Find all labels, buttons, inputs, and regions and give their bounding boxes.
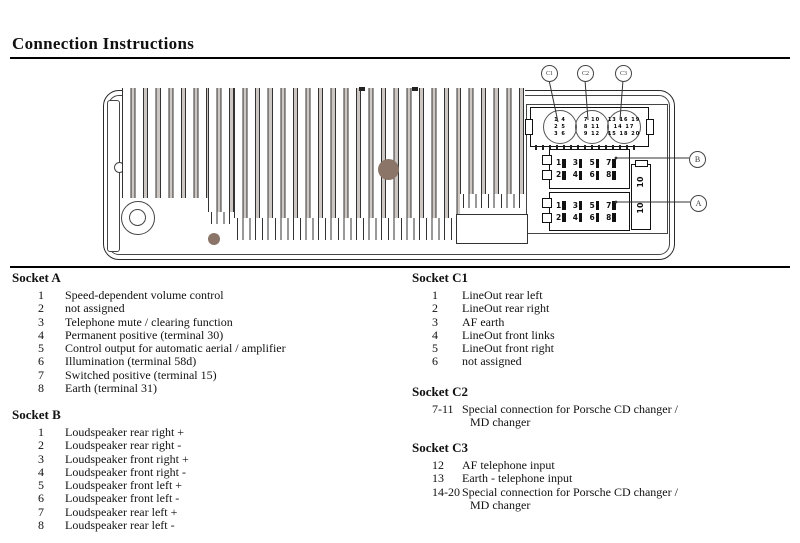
- pin-list: 1Speed-dependent volume control 2not ass…: [12, 289, 407, 395]
- socket-c2-connector: 7 10 8 11 9 12: [575, 110, 609, 144]
- pin-slot: [562, 171, 566, 180]
- pin-slot: [579, 159, 583, 168]
- heatsink-fins-long: [234, 88, 460, 218]
- pin-slot: [612, 171, 616, 180]
- socket-b-pin: 7: [606, 159, 616, 168]
- pin-item: 6Illumination (terminal 58d): [12, 355, 407, 368]
- section-title: Socket C1: [412, 270, 797, 286]
- pin-item: 3Telephone mute / clearing function: [12, 316, 407, 329]
- socket-b-pin-row: 2 4 6 8: [556, 171, 629, 180]
- pin-item: 7-11Special connection for Porsche CD ch…: [412, 403, 797, 416]
- socket-b-pin: 6: [589, 171, 599, 180]
- socket-c1-pin-row: 1 4: [554, 117, 566, 123]
- socket-c2-pin-row: 9 12: [584, 131, 600, 137]
- heatsink-fin-tips: [460, 194, 525, 208]
- callout-b: B: [689, 151, 706, 168]
- pin-list: 7-11Special connection for Porsche CD ch…: [412, 403, 797, 430]
- socket-c-keying-nub: [646, 119, 654, 135]
- section-title: Socket A: [12, 270, 407, 286]
- pin-slot: [596, 201, 600, 210]
- socket-c-block: 1 4 2 5 3 6 7 10 8 11 9 12 13 16 19 14 1…: [530, 107, 649, 147]
- socket-b-pin: 8: [606, 171, 616, 180]
- pin-slot: [562, 213, 566, 222]
- socket-b-pin-row: 1 3 5 7: [556, 159, 629, 168]
- pin-item: 4Loudspeaker front right -: [12, 466, 407, 479]
- socket-c2-pin-row: 7 10: [584, 117, 600, 123]
- top-edge-mark: [412, 87, 418, 91]
- radio-rear-diagram: 1 4 2 5 3 6 7 10 8 11 9 12 13 16 19 14 1…: [103, 90, 675, 260]
- socket-b-pin: 3: [573, 159, 583, 168]
- section-socket-b: Socket B 1Loudspeaker rear right + 2Loud…: [12, 407, 407, 532]
- callout-c2: C2: [577, 65, 594, 82]
- pin-item: 1Speed-dependent volume control: [12, 289, 407, 302]
- pin-slot: [596, 159, 600, 168]
- section-socket-c1: Socket C1 1LineOut rear left 2LineOut re…: [412, 270, 797, 369]
- top-edge-mark: [359, 87, 365, 91]
- pin-item: 8Loudspeaker rear left -: [12, 519, 407, 532]
- pin-slot: [579, 171, 583, 180]
- socket-b-pin: 5: [589, 159, 599, 168]
- section-title: Socket B: [12, 407, 407, 423]
- section-socket-c3: Socket C3 12AF telephone input 13Earth -…: [412, 440, 797, 512]
- pin-item: 6Loudspeaker front left -: [12, 492, 407, 505]
- section-title: Socket C3: [412, 440, 797, 456]
- heatsink-fin-tips: [208, 212, 234, 224]
- socket-b-pin: 1: [556, 159, 566, 168]
- socket-a-pin: 6: [589, 213, 599, 222]
- pin-item: 8Earth (terminal 31): [12, 382, 407, 395]
- aerial-socket-pin: [129, 209, 146, 226]
- section-divider: [10, 266, 790, 268]
- heatsink-fins-short: [122, 88, 222, 198]
- socket-c1-pin-row: 2 5: [554, 124, 566, 130]
- fuse-holder: 10 10: [631, 164, 651, 230]
- socket-c3-connector: 13 16 19 14 17 15 18 20: [607, 110, 641, 144]
- page-title: Connection Instructions: [12, 34, 194, 54]
- connector-panel: 1 4 2 5 3 6 7 10 8 11 9 12 13 16 19 14 1…: [526, 104, 668, 234]
- socket-b-keying-nub: [542, 155, 552, 165]
- pin-item: 4Permanent positive (terminal 30): [12, 329, 407, 342]
- pin-slot: [579, 201, 583, 210]
- section-socket-c2: Socket C2 7-11Special connection for Por…: [412, 384, 797, 430]
- title-underline: [10, 57, 790, 59]
- socket-a-pin: 8: [606, 213, 616, 222]
- socket-a-pin-row: 2 4 6 8: [556, 213, 629, 222]
- socket-c3-pin-row: 13 16 19: [608, 117, 640, 123]
- section-title: Socket C2: [412, 384, 797, 400]
- callout-c3: C3: [615, 65, 632, 82]
- socket-a-pin-row: 1 3 5 7: [556, 201, 629, 210]
- socket-a-pin: 7: [606, 201, 616, 210]
- pin-item: 5Control output for automatic aerial / a…: [12, 342, 407, 355]
- left-mounting-bracket: [107, 100, 120, 252]
- fuse-holder-tab: [635, 160, 648, 167]
- socket-c-keying-nub: [525, 119, 533, 135]
- socket-a-pin: 1: [556, 201, 566, 210]
- callout-c1: C1: [541, 65, 558, 82]
- heatsink-fins-right: [460, 88, 525, 194]
- section-socket-a: Socket A 1Speed-dependent volume control…: [12, 270, 407, 395]
- pin-item: 5Loudspeaker front left +: [12, 479, 407, 492]
- pin-item: 3AF earth: [412, 316, 797, 329]
- socket-c1-connector: 1 4 2 5 3 6: [543, 110, 577, 144]
- pin-list: 12AF telephone input 13Earth - telephone…: [412, 459, 797, 512]
- heatsink-fin-tips: [234, 218, 460, 240]
- pin-slot: [612, 201, 616, 210]
- socket-a-connector: 1 3 5 7 2 4 6 8: [549, 192, 630, 231]
- pin-item: 2Loudspeaker rear right -: [12, 439, 407, 452]
- fixing-bolt: [378, 159, 399, 180]
- socket-a-pin: 3: [573, 201, 583, 210]
- pin-item: 4LineOut front links: [412, 329, 797, 342]
- fixing-screw: [208, 233, 220, 245]
- socket-c3-pin-row: 14 17: [614, 124, 635, 130]
- socket-a-pin: 5: [589, 201, 599, 210]
- socket-b-pin: 4: [573, 171, 583, 180]
- pin-item: 12AF telephone input: [412, 459, 797, 472]
- pin-item: 14-20Special connection for Porsche CD c…: [412, 486, 797, 499]
- pin-item: 13Earth - telephone input: [412, 472, 797, 485]
- pin-list: 1LineOut rear left 2LineOut rear right 3…: [412, 289, 797, 369]
- pin-item: 5LineOut front right: [412, 342, 797, 355]
- pin-list: 1Loudspeaker rear right + 2Loudspeaker r…: [12, 426, 407, 532]
- fuse-rating-label: 10: [636, 174, 646, 190]
- pin-slot: [612, 159, 616, 168]
- socket-b-pin: 2: [556, 171, 566, 180]
- pin-item: 1LineOut rear left: [412, 289, 797, 302]
- aerial-socket: [121, 201, 155, 235]
- socket-a-pin: 4: [573, 213, 583, 222]
- pin-slot: [562, 201, 566, 210]
- pin-slot: [596, 171, 600, 180]
- label-plate: [456, 214, 528, 244]
- pin-item: 3Loudspeaker front right +: [12, 453, 407, 466]
- socket-c3-pin-row: 15 18 20: [608, 131, 640, 137]
- pin-slot: [562, 159, 566, 168]
- socket-b-keying-nub: [542, 170, 552, 180]
- socket-b-connector: 1 3 5 7 2 4 6 8: [549, 149, 630, 189]
- fuse-rating-label: 10: [636, 200, 646, 216]
- socket-a-pin: 2: [556, 213, 566, 222]
- pin-slot: [612, 213, 616, 222]
- pin-slot: [596, 213, 600, 222]
- pin-item: 7Loudspeaker rear left +: [12, 506, 407, 519]
- pin-item: 2LineOut rear right: [412, 302, 797, 315]
- pin-item: 2not assigned: [12, 302, 407, 315]
- document-page: Connection Instructions 1 4 2: [0, 0, 800, 543]
- heatsink-fins-medium: [208, 88, 234, 212]
- pin-item-continuation: MD changer: [412, 499, 797, 512]
- socket-c2-pin-row: 8 11: [584, 124, 600, 130]
- pin-item: 1Loudspeaker rear right +: [12, 426, 407, 439]
- socket-a-keying-nub: [542, 198, 552, 208]
- socket-c1-pin-row: 3 6: [554, 131, 566, 137]
- pin-item: 7Switched positive (terminal 15): [12, 369, 407, 382]
- pin-item-continuation: MD changer: [412, 416, 797, 429]
- pin-slot: [579, 213, 583, 222]
- callout-a: A: [690, 195, 707, 212]
- pin-item: 6not assigned: [412, 355, 797, 368]
- socket-a-keying-nub: [542, 213, 552, 223]
